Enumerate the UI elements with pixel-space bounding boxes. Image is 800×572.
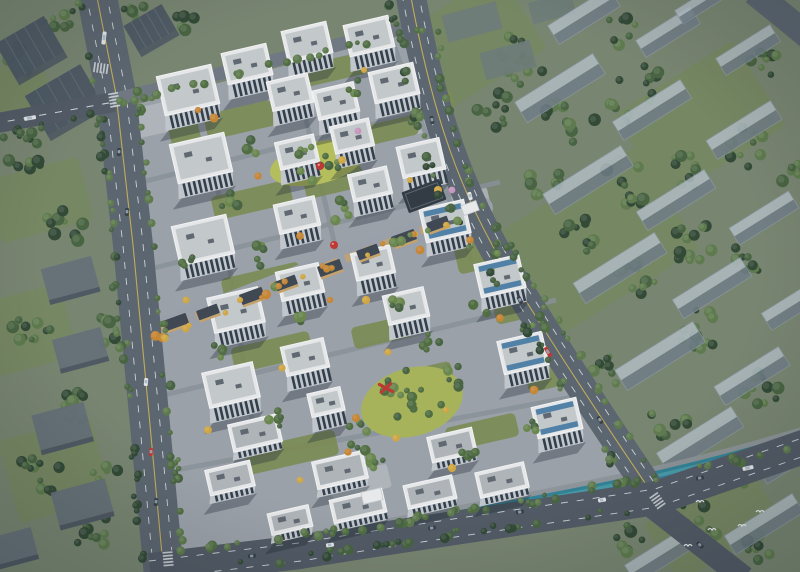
scene-svg — [0, 0, 800, 572]
layer-atmosphere — [0, 0, 800, 572]
vignette — [0, 0, 800, 572]
aerial-masterplan-render — [0, 0, 800, 572]
